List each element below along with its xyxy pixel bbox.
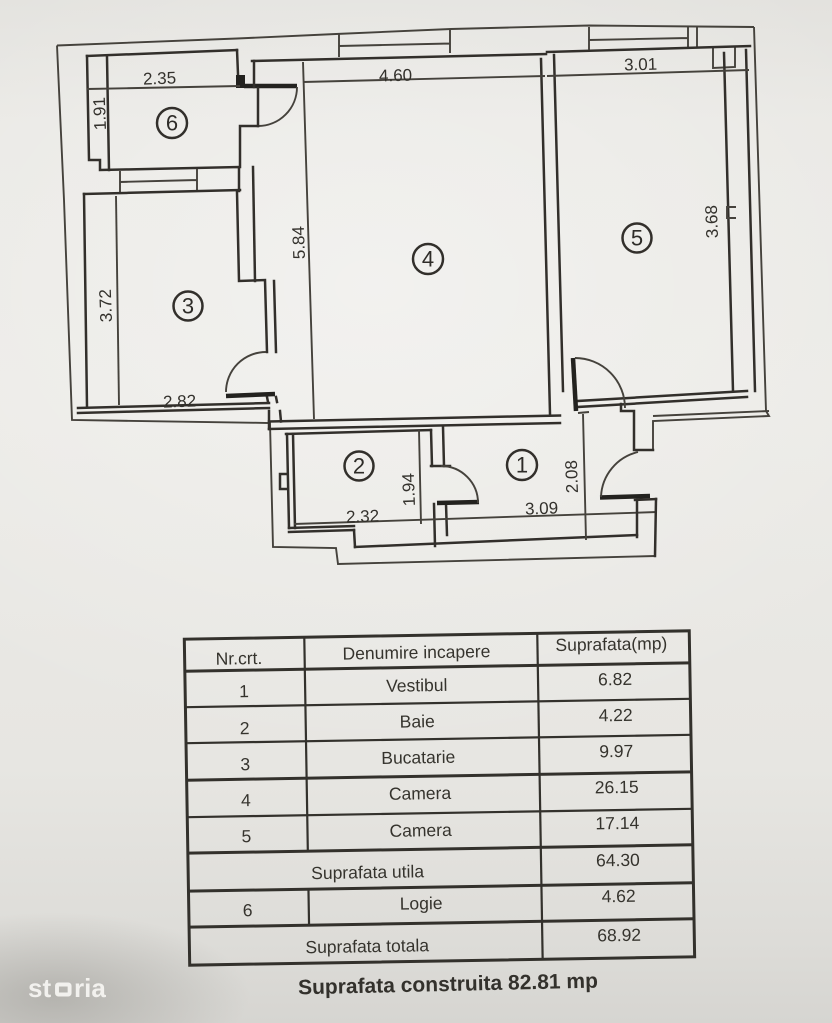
svg-text:4.60: 4.60 <box>379 66 413 86</box>
svg-text:3.72: 3.72 <box>96 289 116 323</box>
svg-text:1.91: 1.91 <box>90 97 110 131</box>
svg-text:1: 1 <box>516 453 528 478</box>
svg-text:3: 3 <box>240 754 250 774</box>
svg-text:Logie: Logie <box>400 893 443 914</box>
svg-text:st: st <box>28 973 51 1003</box>
svg-text:Camera: Camera <box>389 783 452 804</box>
svg-text:3.01: 3.01 <box>624 55 658 75</box>
svg-text:2: 2 <box>240 718 250 738</box>
svg-text:2.32: 2.32 <box>346 506 380 526</box>
svg-text:5: 5 <box>241 826 251 846</box>
svg-text:1.94: 1.94 <box>399 473 419 507</box>
svg-text:Camera: Camera <box>389 820 452 841</box>
svg-text:Vestibul: Vestibul <box>386 675 448 696</box>
svg-text:2.08: 2.08 <box>562 460 582 494</box>
svg-text:3.09: 3.09 <box>525 498 559 518</box>
svg-text:2.35: 2.35 <box>143 68 177 88</box>
svg-text:Suprafata(mp): Suprafata(mp) <box>555 633 667 655</box>
svg-text:Denumire incapere: Denumire incapere <box>342 641 490 663</box>
svg-text:9.97: 9.97 <box>599 741 633 762</box>
svg-text:6.82: 6.82 <box>598 669 632 690</box>
svg-text:Suprafata construita 82.81 mp: Suprafata construita 82.81 mp <box>298 970 598 1000</box>
svg-text:64.30: 64.30 <box>596 850 640 871</box>
svg-text:4.62: 4.62 <box>601 886 635 907</box>
svg-text:6: 6 <box>243 900 253 920</box>
svg-text:68.92: 68.92 <box>597 925 641 946</box>
svg-text:5.84: 5.84 <box>289 226 309 260</box>
svg-text:Bucatarie: Bucatarie <box>381 747 455 768</box>
svg-text:Baie: Baie <box>400 711 435 732</box>
svg-text:1: 1 <box>239 681 249 701</box>
svg-text:17.14: 17.14 <box>595 813 639 834</box>
svg-text:5: 5 <box>631 226 643 251</box>
svg-text:3: 3 <box>182 294 194 319</box>
svg-text:26.15: 26.15 <box>595 777 639 798</box>
svg-text:6: 6 <box>166 111 178 136</box>
svg-text:4: 4 <box>241 790 251 810</box>
svg-text:2.82: 2.82 <box>163 391 197 411</box>
svg-text:4.22: 4.22 <box>598 705 632 726</box>
svg-text:ria: ria <box>74 973 106 1003</box>
svg-text:Nr.crt.: Nr.crt. <box>215 648 262 669</box>
svg-text:3.68: 3.68 <box>702 205 722 239</box>
svg-text:2: 2 <box>353 454 365 479</box>
svg-text:4: 4 <box>422 247 434 272</box>
svg-text:Suprafata utila: Suprafata utila <box>311 861 424 883</box>
svg-text:Suprafata totala: Suprafata totala <box>305 935 429 957</box>
